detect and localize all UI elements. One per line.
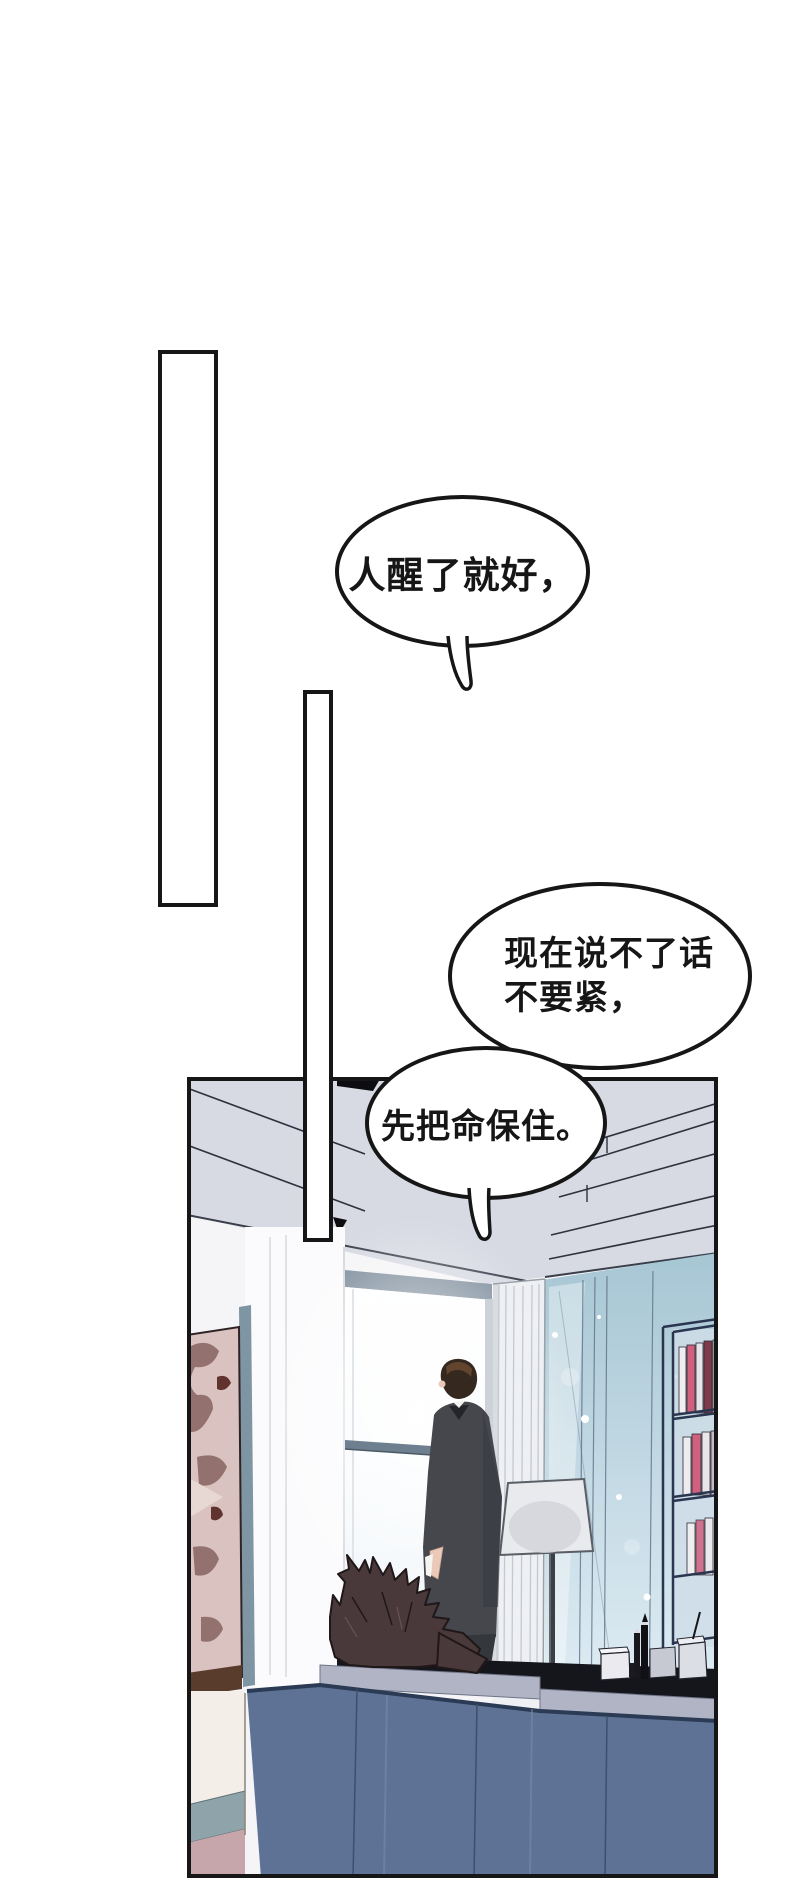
speech-bubble-2: 现在说不了话 不要紧， <box>448 882 752 1070</box>
books-top-shelf <box>679 1340 718 1413</box>
books-lower-shelf <box>687 1518 713 1575</box>
speech-text-2: 现在说不了话 不要紧， <box>452 932 714 1020</box>
books-middle-shelf <box>683 1431 718 1495</box>
speech-bubble-3-tail <box>463 1188 503 1246</box>
speech-text-1: 人醒了就好， <box>349 545 577 599</box>
narrow-panel-bar-2 <box>303 690 333 1242</box>
narrow-panel-bar-1 <box>158 350 218 907</box>
speech-bubble-1: 人醒了就好， <box>335 495 590 648</box>
speech-bubble-1-tail <box>441 636 481 698</box>
speech-text-3: 先把命保住。 <box>381 1099 591 1148</box>
comic-page: 人醒了就好， 现在说不了话 不要紧， 先把命保住。 <box>0 0 800 1886</box>
speech-bubble-3: 先把命保住。 <box>365 1046 607 1200</box>
desk <box>247 1655 718 1878</box>
sideboard-cabinet <box>187 1691 245 1878</box>
framed-painting <box>187 1327 242 1697</box>
